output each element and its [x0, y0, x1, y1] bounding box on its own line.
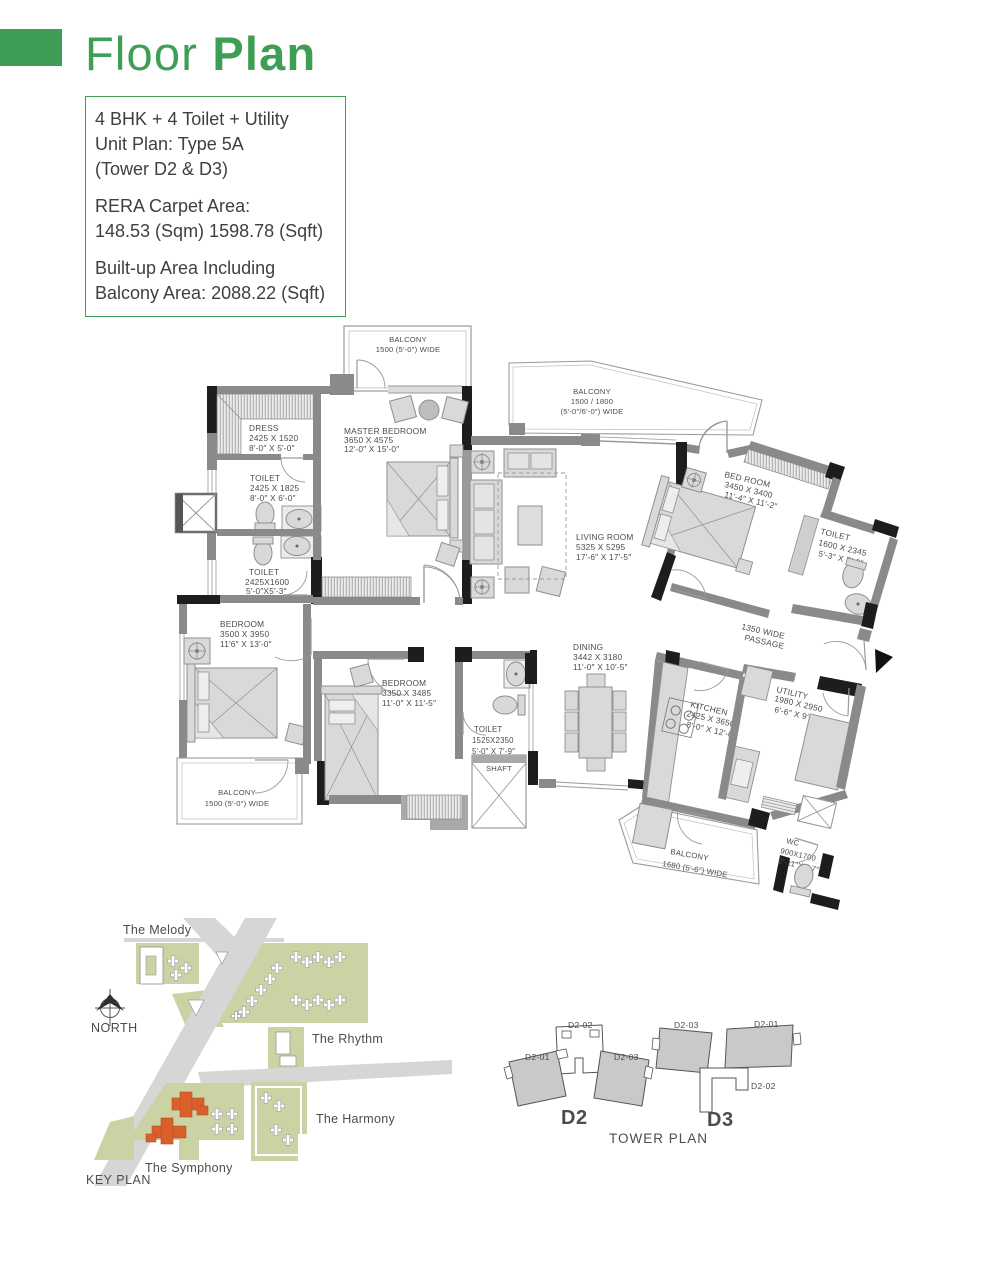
- svg-text:TOILET: TOILET: [250, 473, 280, 483]
- svg-text:The Rhythm: The Rhythm: [312, 1032, 383, 1046]
- svg-text:11′-0″ X 11′-5″: 11′-0″ X 11′-5″: [382, 698, 436, 708]
- svg-text:1500 (5′-0″) WIDE: 1500 (5′-0″) WIDE: [376, 345, 440, 354]
- svg-text:BALCONY: BALCONY: [389, 335, 427, 344]
- svg-text:SHAFT: SHAFT: [486, 764, 512, 773]
- svg-text:3500 X 3950: 3500 X 3950: [220, 629, 269, 639]
- svg-text:TOWER PLAN: TOWER PLAN: [609, 1131, 708, 1146]
- svg-text:17′-6″ X 17′-5″: 17′-6″ X 17′-5″: [576, 552, 631, 562]
- svg-text:TOILET: TOILET: [474, 725, 502, 734]
- svg-text:The Harmony: The Harmony: [316, 1112, 395, 1126]
- svg-text:5325 X 5295: 5325 X 5295: [576, 542, 625, 552]
- svg-text:DINING: DINING: [573, 642, 603, 652]
- svg-text:BEDROOM: BEDROOM: [220, 619, 264, 629]
- svg-text:11′6″ X 13′-0″: 11′6″ X 13′-0″: [220, 639, 272, 649]
- svg-text:D2-02: D2-02: [751, 1081, 776, 1091]
- svg-text:D2-03: D2-03: [614, 1052, 639, 1062]
- svg-text:8′-0″ X 6′-0″: 8′-0″ X 6′-0″: [250, 493, 296, 503]
- svg-text:1525X2350: 1525X2350: [472, 736, 514, 745]
- svg-text:D2-01: D2-01: [525, 1052, 550, 1062]
- svg-text:WC: WC: [786, 836, 801, 848]
- svg-text:The Symphony: The Symphony: [145, 1161, 233, 1175]
- svg-text:BEDROOM: BEDROOM: [382, 678, 426, 688]
- svg-text:5′-0″X5′-3″: 5′-0″X5′-3″: [246, 586, 287, 596]
- svg-text:TOILET: TOILET: [249, 567, 279, 577]
- svg-text:BALCONY: BALCONY: [573, 387, 611, 396]
- svg-text:11′-0″ X 10′-5″: 11′-0″ X 10′-5″: [573, 662, 628, 672]
- svg-text:KEY PLAN: KEY PLAN: [86, 1173, 151, 1187]
- svg-text:2425 X 1520: 2425 X 1520: [249, 433, 298, 443]
- svg-text:D2-03: D2-03: [674, 1020, 699, 1030]
- svg-text:D2-01: D2-01: [754, 1019, 779, 1029]
- svg-text:D2-02: D2-02: [568, 1020, 593, 1030]
- svg-text:NORTH: NORTH: [91, 1021, 138, 1035]
- svg-text:1500 (5′-0″) WIDE: 1500 (5′-0″) WIDE: [205, 799, 269, 808]
- svg-text:1680 (5′-6″) WIDE: 1680 (5′-6″) WIDE: [662, 859, 729, 879]
- svg-text:8′-0″ X 5′-0″: 8′-0″ X 5′-0″: [249, 443, 295, 453]
- svg-text:LIVING ROOM: LIVING ROOM: [576, 532, 634, 542]
- svg-text:DRESS: DRESS: [249, 423, 279, 433]
- svg-text:BALCONY: BALCONY: [218, 788, 256, 797]
- svg-text:12′-0″ X 15′-0″: 12′-0″ X 15′-0″: [344, 444, 399, 454]
- svg-text:D2: D2: [561, 1107, 588, 1129]
- svg-text:2425 X 1825: 2425 X 1825: [250, 483, 299, 493]
- svg-text:(5′-0″/6′-0″) WIDE: (5′-0″/6′-0″) WIDE: [561, 407, 624, 416]
- svg-text:The Melody: The Melody: [123, 923, 192, 937]
- svg-text:3442 X 3180: 3442 X 3180: [573, 652, 622, 662]
- svg-text:3350 X 3485: 3350 X 3485: [382, 688, 431, 698]
- svg-text:D3: D3: [707, 1109, 734, 1131]
- svg-text:1500 / 1800: 1500 / 1800: [571, 397, 613, 406]
